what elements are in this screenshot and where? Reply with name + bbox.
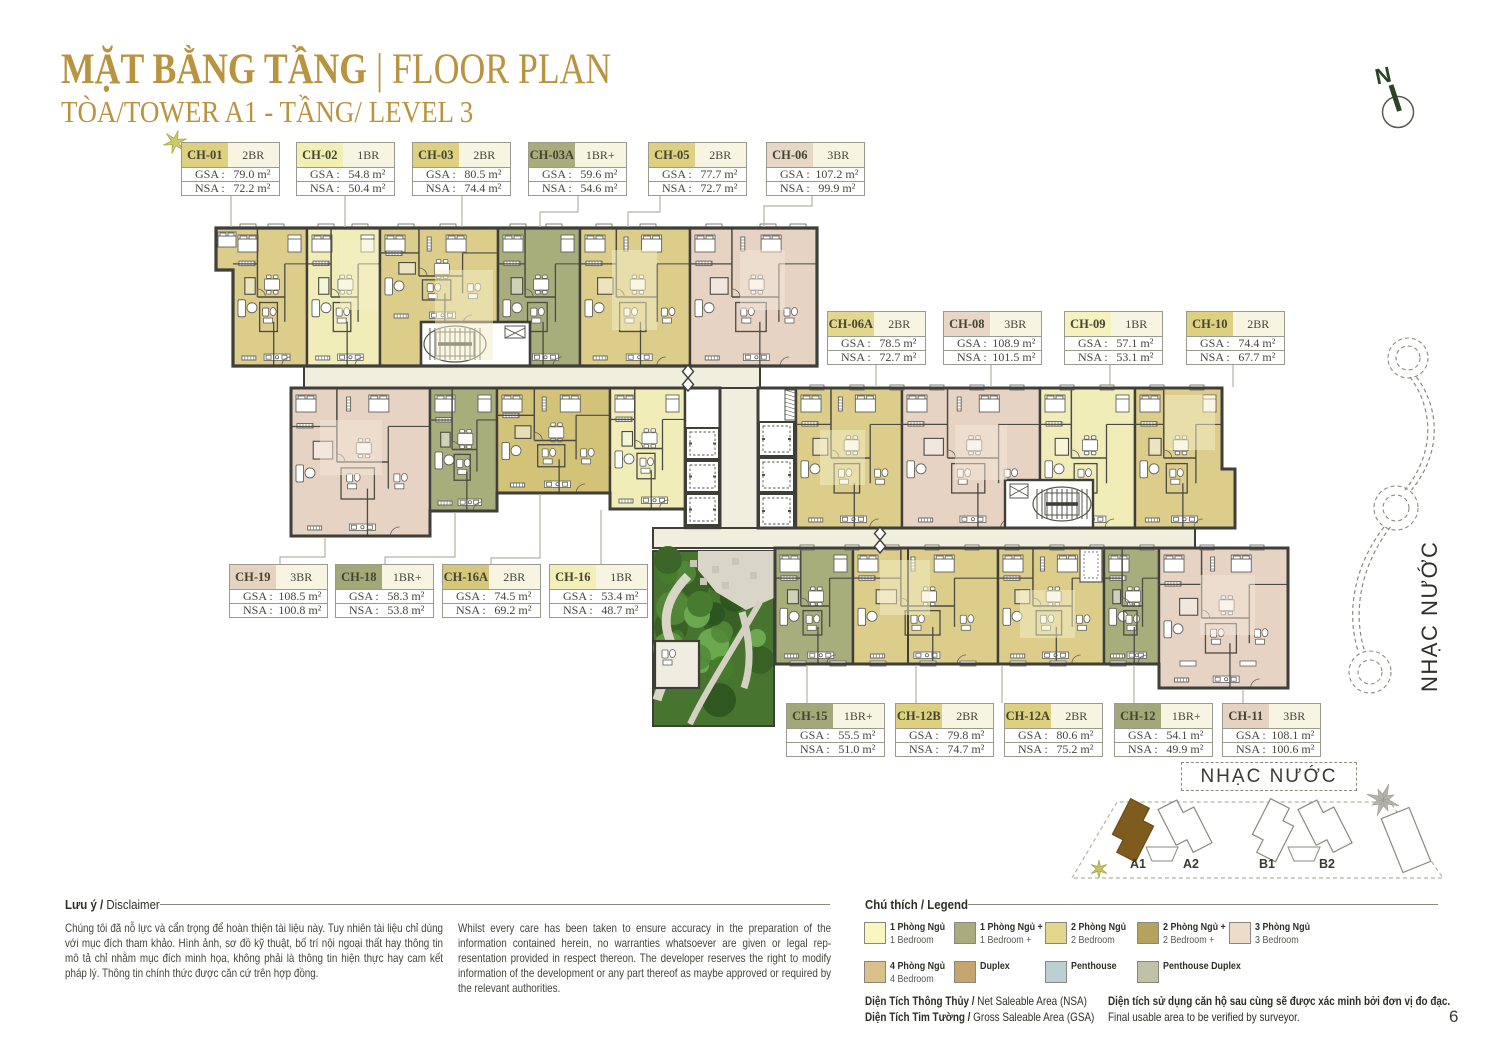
svg-text:A1: A1	[1130, 857, 1146, 871]
svg-text:B1: B1	[1259, 857, 1275, 871]
svg-text:N: N	[1373, 62, 1394, 90]
svg-text:B2: B2	[1319, 857, 1335, 871]
svg-text:NHẠC NƯỚC: NHẠC NƯỚC	[1417, 541, 1442, 692]
svg-text:A2: A2	[1183, 857, 1199, 871]
